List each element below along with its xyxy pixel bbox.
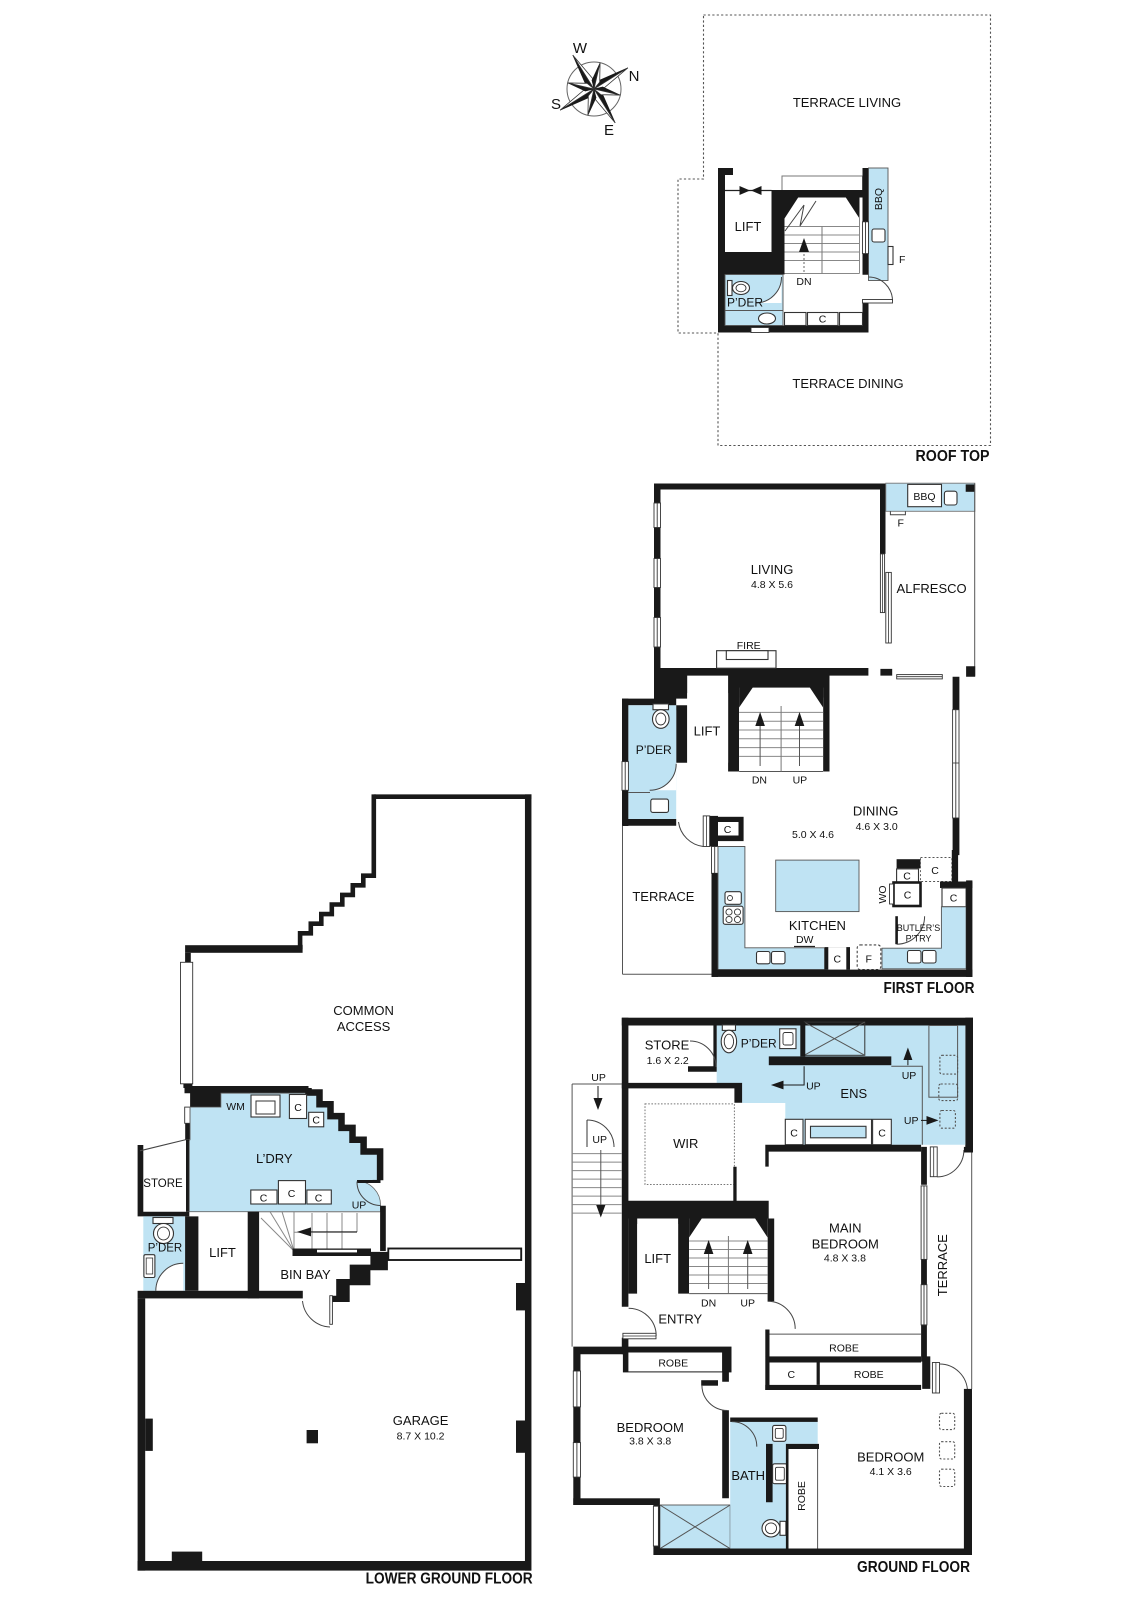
svg-text:L’DRY: L’DRY [256, 1151, 293, 1166]
svg-text:F: F [865, 954, 871, 966]
svg-text:ENS: ENS [840, 1086, 867, 1101]
svg-text:4.8 X 3.8: 4.8 X 3.8 [824, 1253, 866, 1265]
svg-text:ROBE: ROBE [854, 1369, 884, 1381]
svg-text:UP: UP [806, 1081, 821, 1093]
svg-text:N: N [629, 68, 640, 85]
svg-text:TERRACE: TERRACE [935, 1234, 950, 1296]
svg-text:F: F [899, 254, 905, 266]
svg-text:BUTLER’S: BUTLER’S [897, 923, 941, 933]
svg-text:C: C [288, 1188, 296, 1200]
svg-text:ACCESS: ACCESS [337, 1019, 391, 1034]
svg-text:DN: DN [796, 276, 811, 288]
svg-text:BEDROOM: BEDROOM [617, 1420, 684, 1435]
svg-text:UP: UP [740, 1298, 755, 1310]
svg-text:C: C [312, 1115, 320, 1127]
svg-text:P’DER: P’DER [148, 1243, 183, 1255]
svg-text:STORE: STORE [143, 1178, 183, 1190]
svg-text:C: C [315, 1193, 323, 1205]
svg-text:P’DER: P’DER [636, 743, 672, 757]
svg-text:UP: UP [904, 1115, 919, 1127]
svg-text:LIVING: LIVING [751, 562, 794, 577]
svg-text:GARAGE: GARAGE [393, 1413, 449, 1428]
svg-text:5.0 X 4.6: 5.0 X 4.6 [792, 829, 834, 841]
svg-text:C: C [931, 865, 939, 877]
svg-text:BATH: BATH [731, 1468, 765, 1483]
svg-text:BBQ: BBQ [873, 188, 885, 210]
svg-text:ROBE: ROBE [658, 1358, 688, 1370]
svg-text:UP: UP [793, 775, 808, 787]
svg-text:TERRACE DINING: TERRACE DINING [792, 376, 903, 391]
svg-text:C: C [904, 890, 912, 902]
svg-text:P’DER: P’DER [727, 296, 763, 310]
svg-text:STORE: STORE [645, 1038, 690, 1053]
svg-text:C: C [788, 1369, 796, 1381]
svg-text:DW: DW [796, 934, 814, 946]
svg-text:C: C [950, 893, 958, 905]
svg-text:DN: DN [701, 1298, 716, 1310]
svg-text:MAIN: MAIN [829, 1221, 862, 1236]
svg-text:GROUND FLOOR: GROUND FLOOR [857, 1559, 970, 1576]
svg-text:C: C [790, 1128, 798, 1140]
svg-text:LOWER GROUND FLOOR: LOWER GROUND FLOOR [366, 1571, 533, 1588]
svg-text:DINING: DINING [853, 804, 899, 819]
svg-text:3.8 X 3.8: 3.8 X 3.8 [629, 1436, 671, 1448]
svg-text:1.6 X 2.2: 1.6 X 2.2 [647, 1055, 689, 1067]
svg-text:UP: UP [592, 1134, 607, 1146]
svg-text:W: W [573, 40, 588, 57]
svg-text:4.1 X 3.6: 4.1 X 3.6 [870, 1466, 912, 1478]
svg-text:E: E [604, 122, 614, 139]
svg-text:TERRACE LIVING: TERRACE LIVING [793, 95, 901, 110]
svg-text:WIR: WIR [673, 1136, 698, 1151]
svg-text:COMMON: COMMON [333, 1003, 394, 1018]
svg-text:8.7 X 10.2: 8.7 X 10.2 [397, 1431, 445, 1443]
svg-text:LIFT: LIFT [694, 724, 721, 739]
svg-text:C: C [819, 314, 827, 326]
svg-text:FIRST FLOOR: FIRST FLOOR [884, 980, 975, 997]
svg-text:BEDROOM: BEDROOM [857, 1450, 924, 1465]
svg-text:LIFT: LIFT [735, 219, 762, 234]
svg-text:UP: UP [902, 1070, 917, 1082]
svg-text:P’TRY: P’TRY [906, 934, 932, 944]
svg-text:BEDROOM: BEDROOM [812, 1237, 879, 1252]
svg-text:C: C [878, 1128, 886, 1140]
svg-text:C: C [903, 871, 911, 883]
svg-text:C: C [260, 1193, 268, 1205]
svg-text:WO: WO [877, 885, 889, 903]
svg-text:C: C [294, 1102, 302, 1114]
svg-text:LIFT: LIFT [644, 1251, 671, 1266]
svg-text:4.6 X 3.0: 4.6 X 3.0 [856, 821, 898, 833]
svg-text:ROBE: ROBE [829, 1342, 859, 1354]
svg-text:4.8 X 5.6: 4.8 X 5.6 [751, 579, 793, 591]
svg-text:TERRACE: TERRACE [632, 889, 694, 904]
svg-text:ROBE: ROBE [796, 1481, 808, 1511]
svg-text:S: S [551, 96, 561, 113]
svg-text:LIFT: LIFT [209, 1245, 236, 1260]
svg-text:ALFRESCO: ALFRESCO [897, 581, 967, 596]
svg-text:KITCHEN: KITCHEN [789, 918, 846, 933]
svg-text:P’DER: P’DER [741, 1037, 777, 1051]
svg-text:BBQ: BBQ [913, 491, 935, 503]
svg-text:ROOF TOP: ROOF TOP [916, 448, 990, 465]
svg-text:DN: DN [752, 775, 767, 787]
svg-text:WM: WM [226, 1101, 245, 1113]
svg-text:C: C [834, 954, 842, 966]
svg-text:UP: UP [352, 1200, 367, 1212]
svg-text:C: C [724, 824, 732, 836]
svg-text:F: F [898, 518, 904, 530]
svg-text:ENTRY: ENTRY [658, 1312, 702, 1327]
svg-text:UP: UP [591, 1072, 606, 1084]
svg-text:BIN BAY: BIN BAY [280, 1267, 331, 1282]
